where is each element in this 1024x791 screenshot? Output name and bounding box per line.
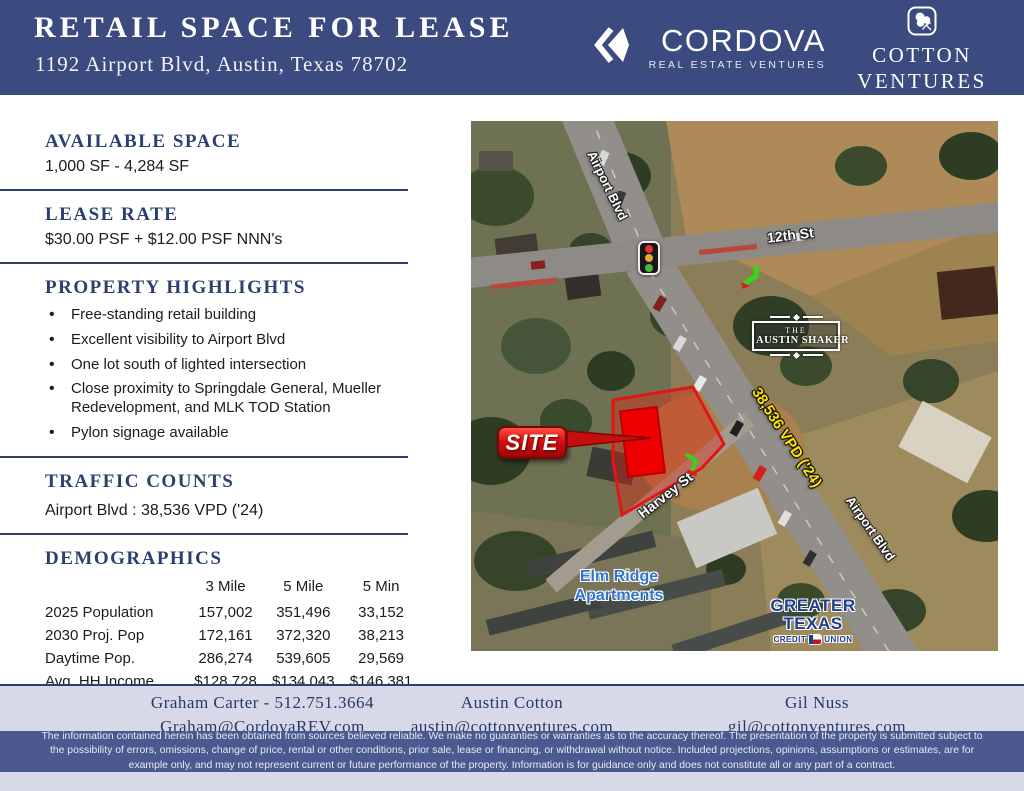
cell-value: 172,161: [187, 624, 265, 647]
highlight-item: Close proximity to Springdale General, M…: [45, 380, 405, 418]
cell-value: 33,152: [342, 601, 420, 624]
shaker-name: AUSTIN SHAKER: [756, 335, 836, 346]
gtcu-line2: TEXAS: [765, 615, 861, 633]
traffic-counts-value: Airport Blvd : 38,536 VPD ('24): [45, 502, 420, 520]
greater-texas-credit-union-logo: GREATER TEXAS CREDIT UNION: [765, 597, 861, 644]
divider: [0, 533, 408, 535]
elm-ridge-label: Elm Ridge Apartments: [563, 567, 675, 605]
divider: [0, 189, 408, 191]
cell-value: 351,496: [264, 601, 342, 624]
cell-value: 38,213: [342, 624, 420, 647]
cotton-name-line1: COTTON: [846, 44, 998, 67]
texas-flag-icon: [809, 635, 821, 644]
footer-contact-band: Graham Carter - 512.751.3664 Graham@Cord…: [0, 684, 1024, 731]
details-column: AVAILABLE SPACE 1,000 SF - 4,284 SF LEAS…: [0, 95, 440, 693]
bottom-strip: [0, 772, 1024, 791]
flyer-header: RETAIL SPACE FOR LEASE 1192 Airport Blvd…: [0, 0, 1024, 95]
section-available-space: AVAILABLE SPACE 1,000 SF - 4,284 SF: [0, 131, 440, 176]
table-row: Daytime Pop. 286,274 539,605 29,569: [45, 647, 420, 670]
site-pointer-icon: [567, 428, 653, 455]
parcel-arrow-icon: [683, 451, 703, 482]
section-lease-rate: LEASE RATE $30.00 PSF + $12.00 PSF NNN's: [0, 204, 440, 249]
demographics-heading: DEMOGRAPHICS: [45, 548, 420, 570]
row-label: 2025 Population: [45, 601, 187, 624]
highlights-list: Free-standing retail building Excellent …: [45, 306, 420, 443]
cell-value: 372,320: [264, 624, 342, 647]
cordova-logo: CORDOVA REAL ESTATE VENTURES: [594, 22, 826, 73]
lease-rate-heading: LEASE RATE: [45, 204, 420, 226]
available-space-value: 1,000 SF - 4,284 SF: [45, 158, 420, 176]
shaker-flourish-top: [752, 313, 840, 321]
table-row: 2025 Population 157,002 351,496 33,152: [45, 601, 420, 624]
address-subtitle: 1192 Airport Blvd, Austin, Texas 78702: [35, 52, 408, 77]
turn-arrow-icon: [737, 263, 761, 294]
austin-shaker-badge: THE AUSTIN SHAKER: [752, 313, 840, 359]
divider: [0, 262, 408, 264]
table-header-row: 3 Mile 5 Mile 5 Min: [45, 576, 420, 601]
cell-value: 157,002: [187, 601, 265, 624]
disclaimer-text: The information contained herein has bee…: [39, 730, 985, 774]
cotton-name-line2: VENTURES: [846, 70, 998, 93]
cell-value: 539,605: [264, 647, 342, 670]
column-header: 5 Mile: [264, 576, 342, 601]
red-light: [645, 245, 653, 253]
contact-name: Gil Nuss: [667, 691, 967, 715]
contact-name: Austin Cotton: [362, 691, 662, 715]
amber-light: [645, 254, 653, 262]
traffic-light-icon: [638, 241, 660, 275]
shaker-flourish-bottom: [752, 351, 840, 359]
elm-ridge-line2: Apartments: [563, 586, 675, 605]
section-demographics: DEMOGRAPHICS 3 Mile 5 Mile 5 Min 2025 Po…: [0, 548, 440, 693]
section-traffic-counts: TRAFFIC COUNTS Airport Blvd : 38,536 VPD…: [0, 471, 440, 520]
site-label: SITE: [506, 430, 559, 456]
gtcu-credit: CREDIT: [773, 635, 806, 644]
column-header: 5 Min: [342, 576, 420, 601]
cotton-flower-icon: [907, 23, 937, 40]
shaker-the: THE: [756, 326, 836, 335]
highlight-item: One lot south of lighted intersection: [45, 356, 405, 375]
page-title: RETAIL SPACE FOR LEASE: [34, 11, 513, 45]
elm-ridge-line1: Elm Ridge: [563, 567, 675, 586]
divider: [0, 456, 408, 458]
gtcu-union: UNION: [824, 635, 852, 644]
aerial-map: Airport Blvd 12th St THE AUSTIN SHAKER S…: [471, 121, 998, 651]
row-label: 2030 Proj. Pop: [45, 624, 187, 647]
lease-rate-value: $30.00 PSF + $12.00 PSF NNN's: [45, 231, 420, 249]
cordova-name: CORDOVA: [649, 25, 826, 56]
map-terrain: [471, 121, 998, 651]
cotton-ventures-logo: COTTON VENTURES: [846, 6, 998, 92]
cell-value: 29,569: [342, 647, 420, 670]
available-space-heading: AVAILABLE SPACE: [45, 131, 420, 153]
cordova-diamond-icon: [594, 22, 640, 73]
cordova-tagline: REAL ESTATE VENTURES: [649, 59, 826, 71]
highlight-item: Pylon signage available: [45, 424, 405, 443]
column-header: 3 Mile: [187, 576, 265, 601]
highlights-heading: PROPERTY HIGHLIGHTS: [45, 277, 420, 299]
site-callout: SITE: [497, 426, 567, 459]
row-label: Daytime Pop.: [45, 647, 187, 670]
highlight-item: Free-standing retail building: [45, 306, 405, 325]
gtcu-line1: GREATER: [765, 597, 861, 615]
highlight-item: Excellent visibility to Airport Blvd: [45, 331, 405, 350]
traffic-counts-heading: TRAFFIC COUNTS: [45, 471, 420, 493]
disclaimer-band: The information contained herein has bee…: [0, 731, 1024, 772]
cell-value: 286,274: [187, 647, 265, 670]
section-property-highlights: PROPERTY HIGHLIGHTS Free-standing retail…: [0, 277, 440, 443]
green-light: [645, 264, 653, 272]
table-row: 2030 Proj. Pop 172,161 372,320 38,213: [45, 624, 420, 647]
demographics-table: 3 Mile 5 Mile 5 Min 2025 Population 157,…: [45, 576, 420, 693]
